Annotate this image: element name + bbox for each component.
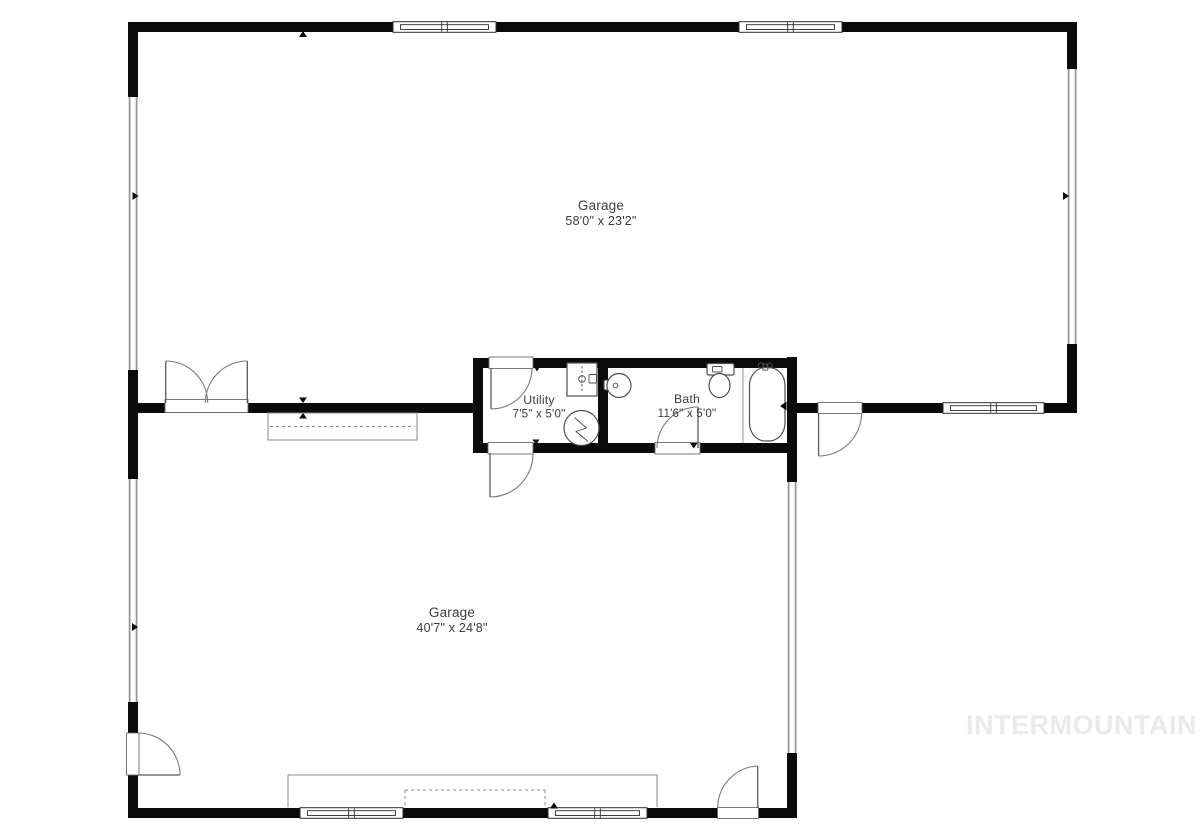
wall-bottom	[128, 808, 797, 818]
bath-dims: 11'6" x 5'0"	[658, 407, 717, 420]
garage-door-between-garages	[268, 413, 417, 440]
bathtub-icon	[750, 363, 786, 441]
water-heater-icon	[564, 411, 599, 446]
utility-door-bottom	[488, 443, 533, 498]
window-right-top	[1067, 69, 1078, 344]
walls	[128, 22, 1077, 818]
window-bottom-2	[548, 808, 647, 819]
garage-bottom-label: Garage	[429, 605, 475, 620]
wall-block-left	[473, 358, 483, 453]
window-right-bottom	[787, 482, 798, 753]
utility-dims: 7'5" x 5'0"	[513, 408, 566, 421]
garage-top-label: Garage	[578, 198, 624, 213]
utility-label: Utility	[523, 393, 555, 407]
exterior-door-bottom	[718, 766, 759, 819]
garage-door-bottom	[288, 775, 657, 807]
toilet-icon	[707, 364, 734, 398]
double-door	[165, 361, 248, 413]
window-left-bottom	[128, 479, 139, 702]
garage-top-dims: 58'0" x 23'2"	[565, 214, 636, 228]
washer-icon	[567, 363, 597, 396]
exterior-door-top-garage	[818, 403, 862, 457]
sink-icon	[604, 374, 631, 398]
wall-utility-bath-divider	[598, 358, 608, 453]
window-top-2	[739, 22, 842, 33]
floorplan-drawing: Garage 58'0" x 23'2" Utility 7'5" x 5'0"…	[0, 0, 1200, 833]
wall-top	[128, 22, 1077, 32]
window-mid-right	[943, 403, 1044, 414]
floorplan-canvas: Garage 58'0" x 23'2" Utility 7'5" x 5'0"…	[0, 0, 1200, 833]
window-bottom-1	[300, 808, 403, 819]
window-top-1	[393, 22, 496, 33]
exterior-door-left	[127, 733, 181, 775]
garage-bottom-dims: 40'7" x 24'8"	[416, 621, 487, 635]
watermark: INTERMOUNTAIN	[966, 710, 1197, 741]
bath-label: Bath	[674, 392, 700, 406]
window-left-top	[128, 97, 139, 370]
